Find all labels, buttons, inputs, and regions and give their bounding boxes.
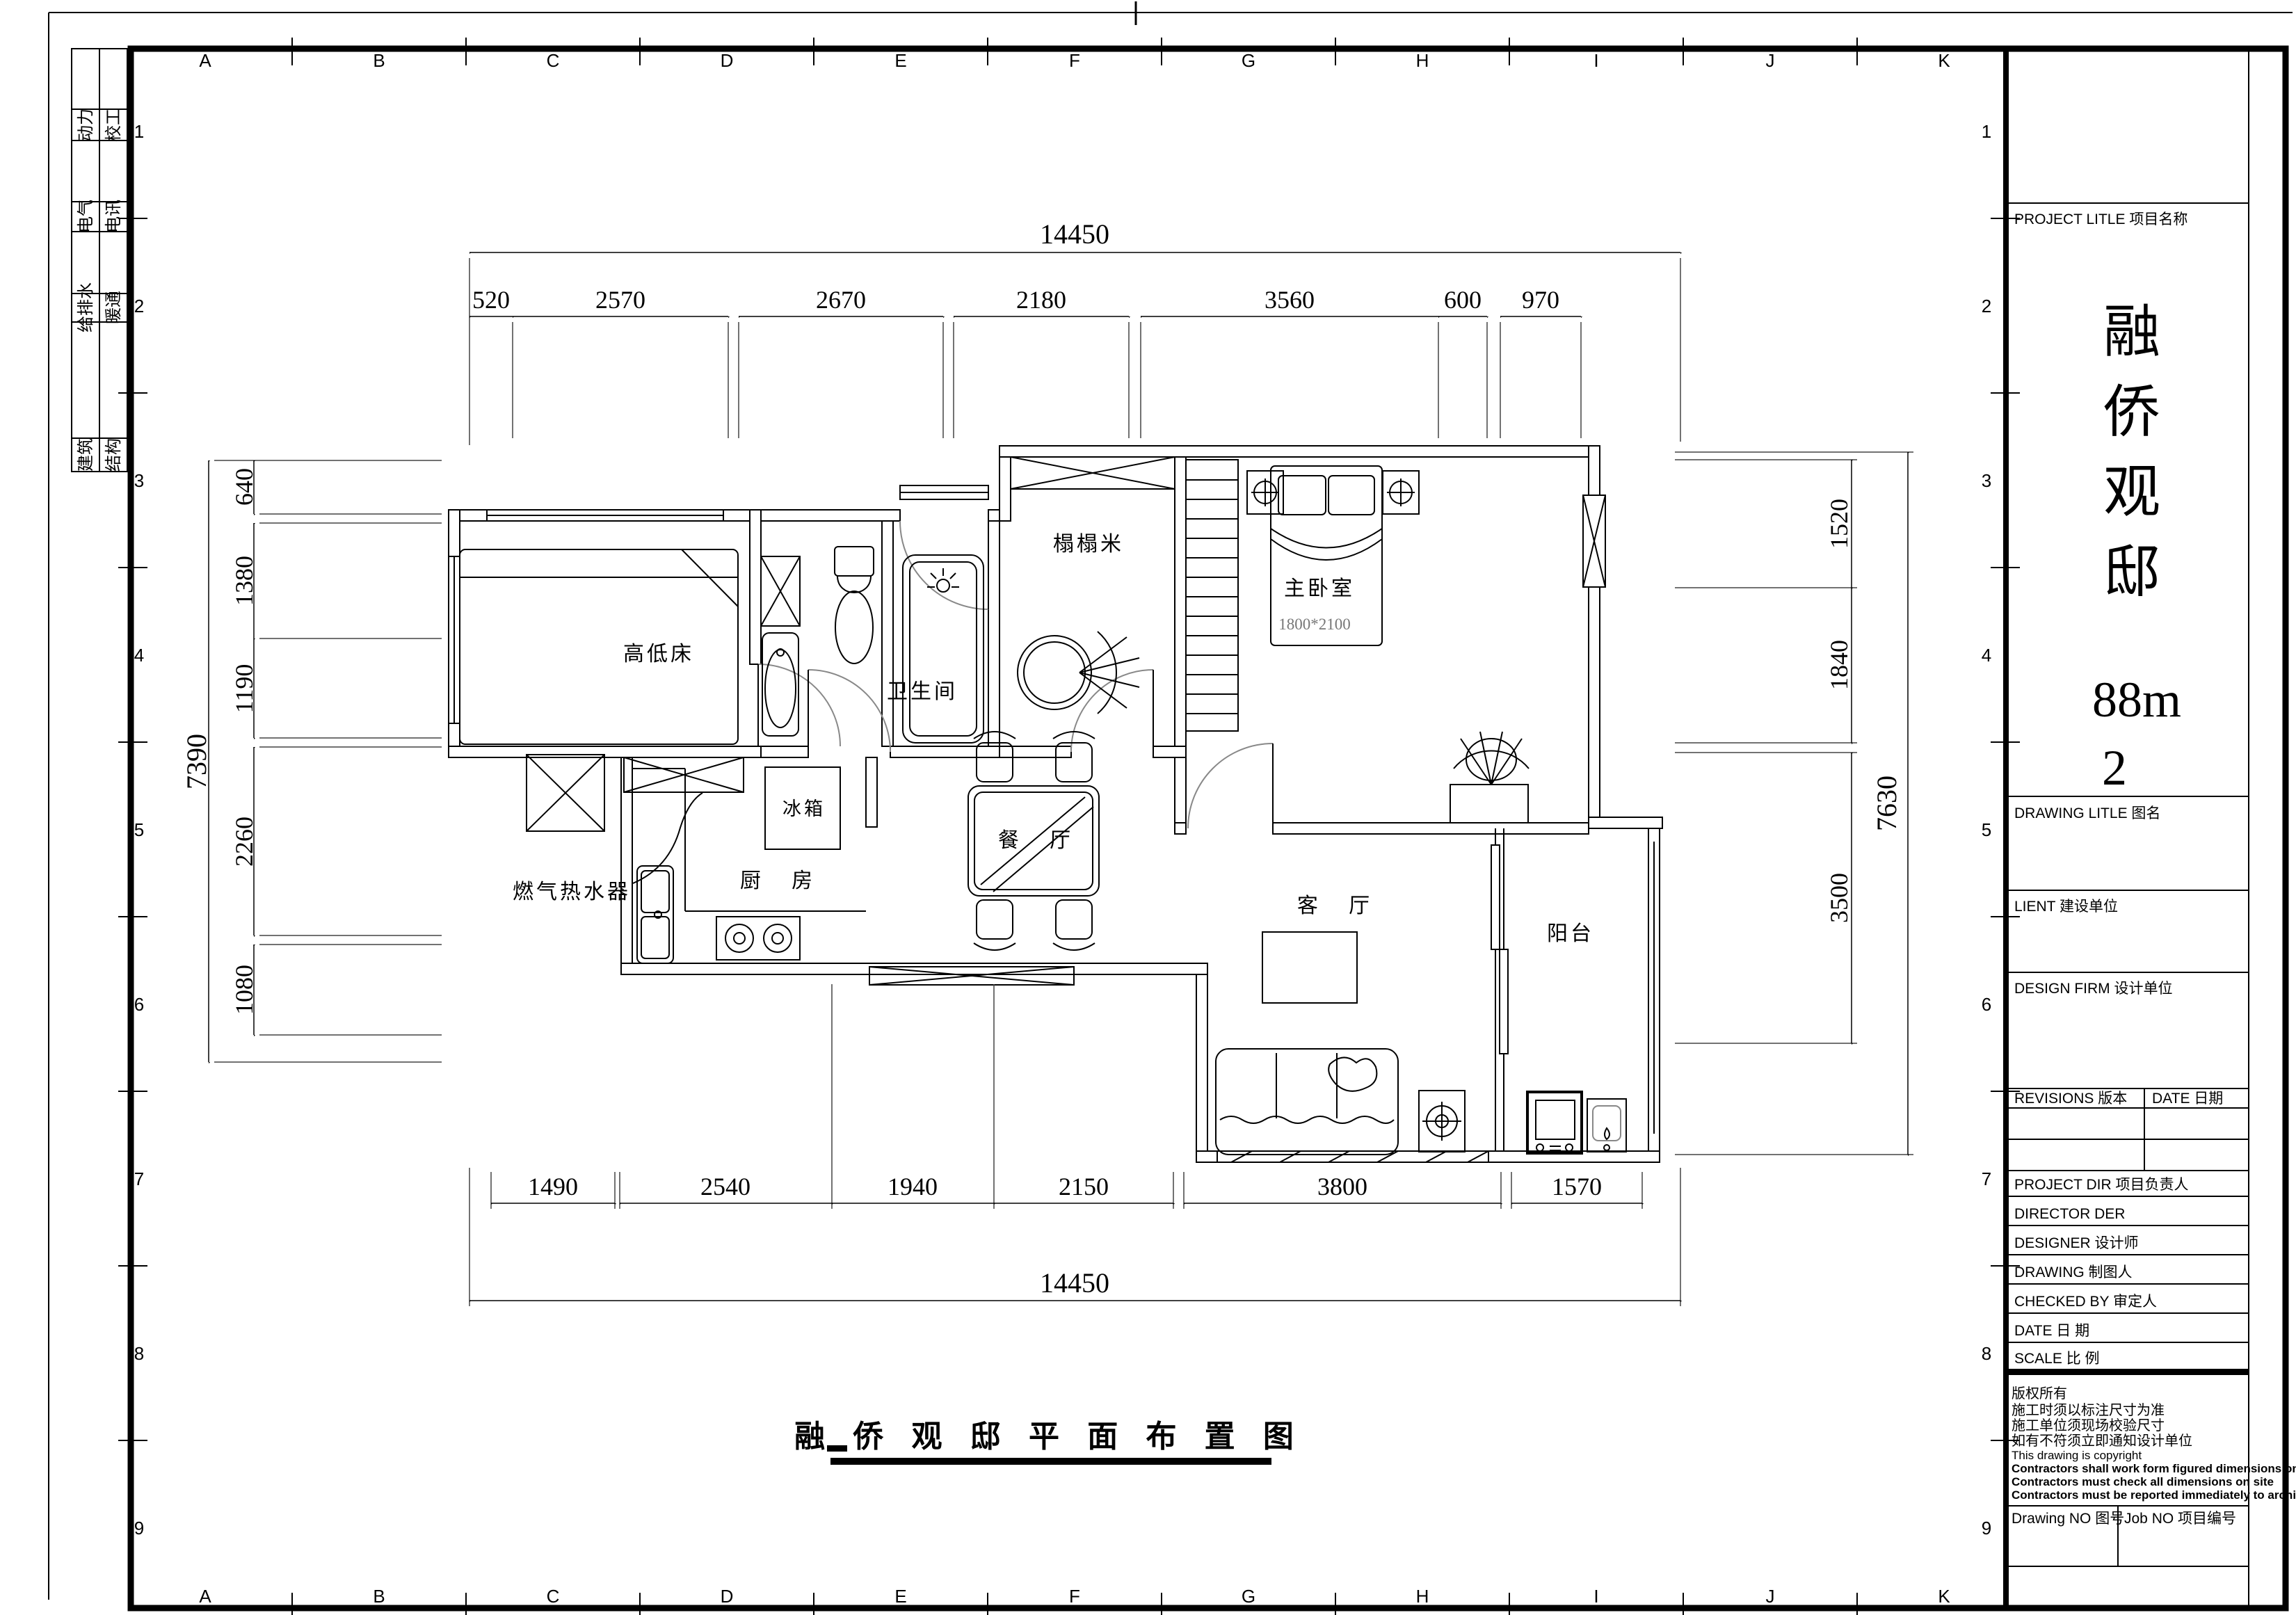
side-table-lamp [1419, 1091, 1465, 1152]
stove [716, 917, 800, 960]
grid-letter: K [1938, 50, 1950, 71]
room-label-bathroom: 卫生间 [887, 680, 958, 703]
grid-number: 1 [1982, 121, 1991, 142]
grid-letter: G [1242, 1586, 1255, 1607]
room-label-master: 主卧室 [1284, 577, 1355, 600]
copyright-line: 如有不符须立即通知设计单位 [2012, 1433, 2192, 1449]
dim-bottom-total: 14450 [1040, 1267, 1109, 1299]
dim: 3800 [1317, 1173, 1367, 1200]
grid-number: 6 [1982, 994, 1991, 1015]
grid-ticks [118, 38, 2020, 1615]
title-block: PROJECT LITLE 项目名称 融 侨 观 邸 88m 2 DRAWING… [2006, 203, 2296, 1566]
cad-sheet: A B C D E F G H I J K A B C D E F G H I … [0, 0, 2296, 1615]
grid-number: 9 [134, 1518, 144, 1538]
grid-letter: H [1416, 50, 1429, 71]
grid-number: 7 [134, 1168, 144, 1189]
copyright-line: Contractors must be reported immediately… [2012, 1488, 2296, 1502]
dim: 2540 [700, 1173, 750, 1200]
tb-scale: SCALE 比 例 [2014, 1351, 2100, 1367]
room-label-dining: 餐 厅 [998, 829, 1083, 852]
grid-letter: G [1242, 50, 1255, 71]
tb-project-title: PROJECT LITLE 项目名称 [2014, 211, 2187, 227]
tb-director: DIRECTOR DER [2014, 1206, 2125, 1222]
dim: 640 [230, 468, 258, 506]
master-closet-ladder [1186, 460, 1238, 731]
grid-letter: B [373, 1586, 385, 1607]
tb-job-no: Job NO 项目编号 [2124, 1511, 2236, 1527]
tb-drawing-title: DRAWING LITLE 图名 [2014, 805, 2160, 821]
grid-letter: C [547, 50, 560, 71]
grid-number: 6 [134, 994, 144, 1015]
grid-number: 3 [1982, 470, 1991, 491]
plan-caption: 融 侨 观 邸 平 面 布 置 图 [794, 1420, 1303, 1465]
discipline-table: 动力 校工 电气 电讯 给排水 暖通 建筑 结构 [72, 49, 127, 472]
tb-name-char: 观 [2103, 460, 2160, 524]
kitchen-counter [632, 769, 866, 963]
dim: 600 [1444, 286, 1482, 314]
dim: 2670 [816, 286, 866, 314]
dim: 520 [472, 286, 510, 314]
room-label-kitchen: 厨 房 [740, 869, 825, 892]
kitchen-cabinets [527, 755, 744, 831]
room-label-children: 高低床 [623, 643, 694, 666]
dim: 970 [1522, 286, 1559, 314]
grid-letter: B [373, 50, 385, 71]
tb-rev-date: DATE 日期 [2152, 1091, 2223, 1107]
floor-plan-drawing: A B C D E F G H I J K A B C D E F G H I … [0, 0, 2296, 1615]
toilet [835, 547, 874, 664]
discipline-cell: 电讯 [104, 200, 123, 233]
grid-letter: D [721, 1586, 734, 1607]
tatami-closet [1011, 457, 1175, 489]
copyright-line: 施工时须以标注尺寸为准 [2012, 1402, 2165, 1418]
copyright-line: 施工单位须现场校验尺寸 [2012, 1417, 2165, 1433]
dim-top-total: 14450 [1040, 218, 1109, 250]
dim: 3500 [1825, 873, 1853, 923]
discipline-cell: 建筑 [77, 438, 95, 472]
copyright-line: This drawing is copyright [2012, 1449, 2142, 1462]
copyright-line: 版权所有 [2012, 1385, 2067, 1401]
laundry-sink [1587, 1099, 1626, 1152]
tb-revisions: REVISIONS 版本 [2014, 1091, 2127, 1107]
dim: 1570 [1552, 1173, 1602, 1200]
dim: 1490 [528, 1173, 578, 1200]
grid-number: 4 [134, 645, 144, 666]
dim: 2260 [230, 817, 258, 867]
grid-number: 2 [1982, 296, 1991, 316]
grid-letter: F [1069, 50, 1080, 71]
balcony-slider [1500, 949, 1508, 1054]
discipline-cell: 动力 [77, 109, 95, 142]
copyright-line: Contractors shall work form figured dime… [2012, 1462, 2296, 1475]
discipline-cell: 电气 [77, 200, 95, 233]
grid-letter: C [547, 1586, 560, 1607]
tb-name-char: 邸 [2103, 540, 2160, 604]
tb-date: DATE 日 期 [2014, 1323, 2089, 1339]
dim: 3560 [1265, 286, 1315, 314]
grid-letter: E [894, 1586, 906, 1607]
tb-designer: DESIGNER 设计师 [2014, 1235, 2139, 1251]
tb-client: LIENT 建设单位 [2014, 899, 2118, 915]
discipline-cell: 结构 [104, 438, 123, 472]
grid-letter: A [199, 1586, 211, 1607]
bunk-bed [460, 549, 738, 744]
discipline-cell: 校工 [104, 109, 123, 142]
tb-copyright: 版权所有 施工时须以标注尺寸为准 施工单位须现场校验尺寸 如有不符须立即通知设计… [2012, 1385, 2296, 1502]
sofa [1216, 1049, 1398, 1155]
room-label-balcony: 阳台 [1547, 922, 1594, 945]
tb-name-char: 2 [2102, 740, 2127, 796]
grid-letter: E [894, 50, 906, 71]
dim: 1380 [230, 556, 258, 606]
grid-number: 8 [1982, 1343, 1991, 1364]
caption-text: 融 侨 观 邸 平 面 布 置 图 [794, 1420, 1303, 1454]
room-label-tatami: 榻榻米 [1053, 533, 1124, 556]
sheet-frame [49, 1, 2293, 1608]
balcony-slider [1491, 845, 1500, 949]
grid-letter: A [199, 50, 211, 71]
fridge-label: 冰箱 [782, 798, 826, 819]
dim: 1080 [230, 965, 258, 1015]
grid-letter: F [1069, 1586, 1080, 1607]
grid-letter: J [1766, 50, 1775, 71]
dim: 2180 [1016, 286, 1066, 314]
copyright-line: Contractors must check all dimensions on… [2012, 1475, 2274, 1488]
vanity-desk-chair [1450, 732, 1529, 823]
bathtub [903, 555, 984, 743]
dim-right-total: 7630 [1871, 776, 1902, 831]
bath-vanity [761, 556, 800, 736]
grid-letter: I [1593, 1586, 1598, 1607]
grid-number: 1 [134, 121, 144, 142]
grid-number: 9 [1982, 1518, 1991, 1538]
grid-labels: A B C D E F G H I J K A B C D E F G H I … [134, 50, 1991, 1607]
dim: 1840 [1825, 640, 1853, 690]
water-heater-leader [633, 793, 703, 883]
tb-name-char: 侨 [2103, 380, 2160, 444]
tb-name-char: 88m [2092, 672, 2181, 728]
grid-number: 3 [134, 470, 144, 491]
grid-number: 2 [134, 296, 144, 316]
tb-project-dir: PROJECT DIR 项目负责人 [2014, 1177, 2188, 1193]
tatami-table [1018, 632, 1139, 714]
dim: 1190 [230, 664, 258, 714]
plan-furniture [460, 457, 1626, 1155]
tb-name-char: 融 [2103, 300, 2160, 364]
dim: 1520 [1825, 499, 1853, 549]
grid-number: 5 [134, 819, 144, 840]
grid-number: 5 [1982, 819, 1991, 840]
grid-letter: I [1593, 50, 1598, 71]
water-heater-label: 燃气热水器 [513, 881, 631, 903]
grid-letter: J [1766, 1586, 1775, 1607]
tb-design-firm: DESIGN FIRM 设计单位 [2014, 981, 2173, 997]
dimension-texts: 14450 520 2570 2670 2180 3560 600 970 14… [181, 218, 1902, 1299]
grid-letter: H [1416, 1586, 1429, 1607]
washing-machine [1527, 1092, 1582, 1153]
room-label-living: 客 厅 [1297, 894, 1382, 917]
dim-left-total: 7390 [181, 734, 212, 789]
dim: 1940 [888, 1173, 938, 1200]
dim: 2150 [1059, 1173, 1109, 1200]
grid-number: 8 [134, 1343, 144, 1364]
grid-letter: K [1938, 1586, 1950, 1607]
dim: 2570 [595, 286, 645, 314]
grid-number: 4 [1982, 645, 1991, 666]
tb-drawing-no: Drawing NO 图号 [2012, 1511, 2124, 1527]
grid-letter: D [721, 50, 734, 71]
discipline-cell: 暖通 [104, 291, 123, 324]
tv-table [1262, 932, 1357, 1003]
grid-number: 7 [1982, 1168, 1991, 1189]
tb-drawing: DRAWING 制图人 [2014, 1264, 2133, 1280]
tb-checked-by: CHECKED BY 审定人 [2014, 1294, 2157, 1310]
bed-size-label: 1800*2100 [1278, 616, 1351, 633]
discipline-cell: 给排水 [77, 282, 95, 332]
